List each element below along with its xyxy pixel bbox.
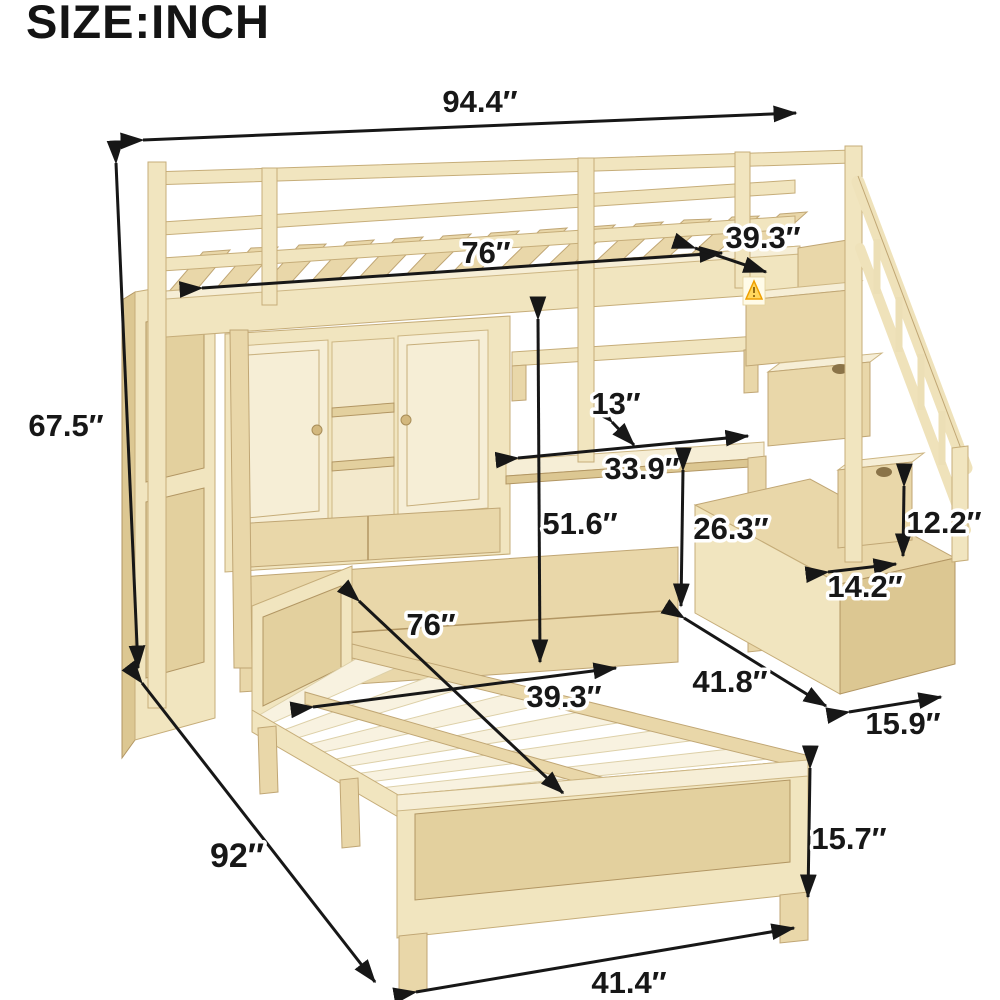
dim-label-hutch-shelf-depth: 13″ [591,386,640,421]
dim-label-overall-depth: 92″ [210,837,264,875]
footboard-leg-right [780,892,808,943]
stair-newel-post [845,146,862,562]
dim-label-stair-step-height: 12.2″ [906,505,981,540]
dim-arrow-desk-height [681,470,683,606]
stair-rail-top [858,182,966,468]
loft-leg-front [230,330,252,668]
bed-leg-mid [340,778,360,848]
stair-rail-top-edge [858,176,966,462]
dim-label-platform-bed-width: 39.3″ [526,679,601,714]
dim-label-stair-base-length: 41.8″ [692,664,767,699]
dim-label-desk-height: 26.3″ [693,511,768,546]
dim-arrow-stair-step-height [903,486,904,556]
dim-label-overall-height: 67.5″ [28,408,103,443]
dim-arrow-hutch-shelf-depth [612,422,634,445]
cabinet-door-right [398,330,488,516]
dim-arrow-footboard-height [808,768,810,897]
dim-label-platform-bed-length: 76″ [406,607,455,642]
product-dimension-diagram: SIZE:INCH [0,0,1000,1000]
wardrobe [122,278,215,758]
cabinet-open-shelf [332,338,394,522]
loft-post-left [148,162,166,708]
dim-label-desk-length: 33.9″ [604,451,679,486]
dim-label-footboard-width: 41.4″ [591,965,666,1000]
hutch-shelf-bracket-left [512,365,526,401]
stair-drawer-3-notch [876,467,892,477]
cabinet-door-left-knob [312,425,322,435]
dim-label-loft-bed-length: 76″ [461,235,510,270]
dim-label-loft-bed-width: 39.3″ [725,220,800,255]
dim-label-footboard-height: 15.7″ [811,821,886,856]
cabinet-door-right-knob [401,415,411,425]
stair-newel-post-end [952,446,968,562]
dim-label-stair-step-depth: 14.2″ [827,569,902,604]
warning-sticker [743,277,765,305]
dim-label-overall-width: 94.4″ [442,84,517,119]
hutch-shelf [512,336,758,366]
dim-label-stair-base-width: 15.9″ [865,706,940,741]
loft-bed-diagram: 94.4″ 67.5″ 76″ 39.3″ 13″ 33.9″ 51.6″ 26… [0,0,1000,1000]
footboard-leg-left [399,933,427,993]
bed-leg-head [258,726,278,794]
footboard [397,760,808,993]
storage-cabinet [225,316,510,572]
dim-label-under-loft-clearance: 51.6″ [542,506,617,541]
dim-arrow-under-loft-clearance [538,319,540,662]
